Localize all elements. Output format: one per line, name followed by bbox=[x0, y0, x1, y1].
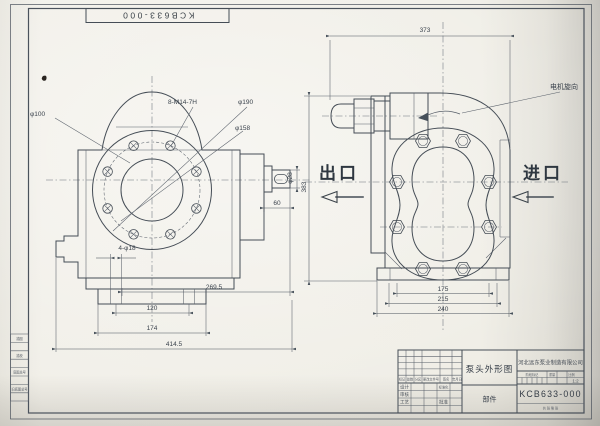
rev-header: 标记 bbox=[399, 377, 406, 382]
drawing-title: 泵头外形图 bbox=[466, 364, 514, 374]
part-category: 部件 bbox=[483, 395, 497, 404]
label-bolt-spec: 8-M14-7H bbox=[168, 99, 197, 106]
company-name: 河北远东泵业制造有限公司 bbox=[518, 359, 583, 367]
corner-stamp: KCB633-000 bbox=[121, 11, 195, 21]
rev-header: 处数 bbox=[407, 377, 414, 382]
scale-value: 1:2 bbox=[572, 379, 579, 384]
rev-header: 分区 bbox=[415, 377, 422, 382]
stage-header: 重量 bbox=[549, 372, 556, 377]
label-dia190: φ190 bbox=[238, 99, 253, 106]
title-block: 标记 处数 分区 更改文件号 签名 年月日 设计 标准化 审核 工艺 批准 泵头… bbox=[398, 350, 584, 413]
left-view-linework bbox=[46, 76, 312, 322]
inlet-arrow-icon bbox=[513, 192, 528, 203]
rev-header: 签名 bbox=[443, 377, 449, 382]
left-view-dimensions: φ100 8-M14-7H φ190 φ158 4-φ18 60 269.5 1… bbox=[30, 99, 300, 352]
motor-rotation-label: 电机旋向 bbox=[550, 82, 578, 91]
flow-annotations: 出口 进口 电机旋向 bbox=[319, 82, 578, 203]
stage-header: 比例 bbox=[568, 372, 574, 377]
margin-row-label: 旧底图总号 bbox=[12, 386, 28, 391]
dim-240: 240 bbox=[438, 306, 449, 313]
label-foot-holes: 4-φ18 bbox=[118, 245, 136, 252]
stage-header: 阶段标记 bbox=[526, 372, 540, 377]
label-dia100: φ100 bbox=[30, 111, 45, 118]
dim-373: 373 bbox=[420, 27, 431, 34]
margin-row-label: 底图总号 bbox=[13, 370, 26, 375]
inlet-label: 进口 bbox=[523, 164, 563, 183]
sheet-frame bbox=[11, 5, 592, 420]
dim-174: 174 bbox=[147, 325, 158, 332]
outlet-label: 出口 bbox=[319, 163, 359, 183]
dim-120: 120 bbox=[147, 305, 158, 312]
margin-row-label: 描图 bbox=[16, 336, 22, 341]
rev-header: 年月日 bbox=[452, 377, 462, 382]
margin-row-label: 描校 bbox=[16, 353, 23, 358]
margin-block: 描图 描校 底图总号 旧底图总号 bbox=[11, 334, 29, 401]
sign-label: 设计 bbox=[400, 384, 409, 391]
drawing-canvas: KCB633-000 bbox=[0, 0, 600, 426]
sign-label: 标准化 bbox=[439, 384, 449, 389]
drawing-number: KCB633-000 bbox=[519, 389, 581, 399]
outlet-arrow-icon bbox=[322, 192, 337, 203]
dim-269-5: 269.5 bbox=[206, 284, 223, 291]
sign-label: 工艺 bbox=[400, 400, 409, 405]
label-dia158: φ158 bbox=[235, 125, 250, 132]
sign-label: 批准 bbox=[439, 399, 448, 406]
drawing-sheet: KCB633-000 bbox=[0, 0, 600, 426]
rev-header: 更改文件号 bbox=[423, 377, 439, 382]
scan-speck bbox=[42, 76, 47, 81]
dim-shaft-dia: φ28 bbox=[287, 172, 294, 184]
dim-215: 215 bbox=[438, 296, 449, 303]
dim-175: 175 bbox=[438, 286, 449, 293]
dim-383: 383 bbox=[301, 181, 308, 192]
dim-60: 60 bbox=[273, 200, 281, 207]
sheet-note: 共 张 第 张 bbox=[543, 406, 559, 411]
dim-414-5: 414.5 bbox=[166, 341, 183, 348]
sign-label: 审核 bbox=[400, 391, 409, 398]
